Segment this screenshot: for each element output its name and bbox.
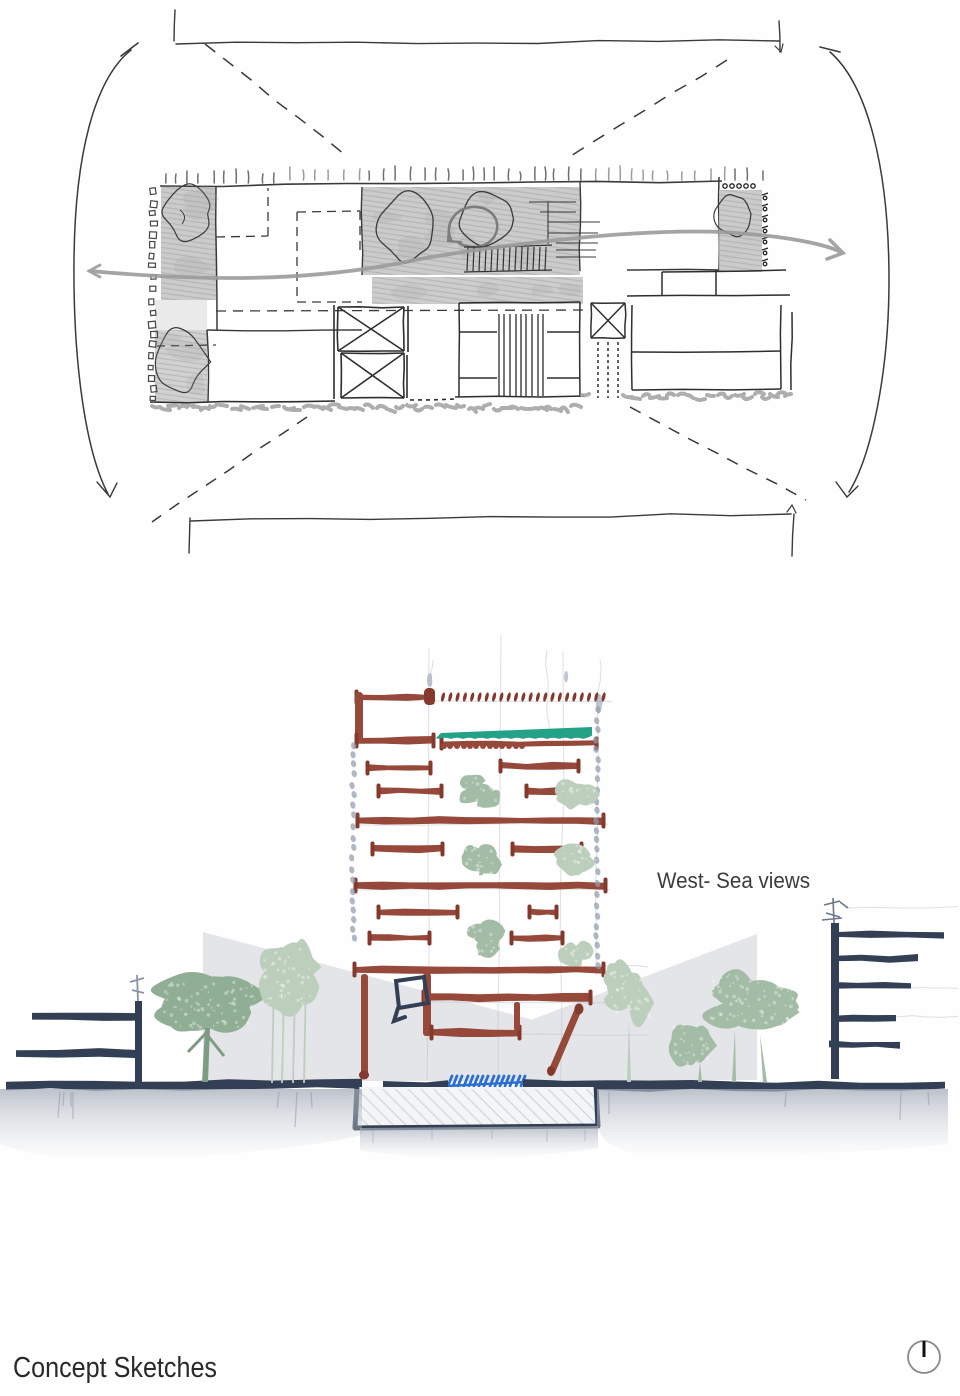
svg-text:West- Sea views: West- Sea views: [657, 868, 810, 893]
svg-text:Concept Sketches: Concept Sketches: [13, 1352, 217, 1384]
